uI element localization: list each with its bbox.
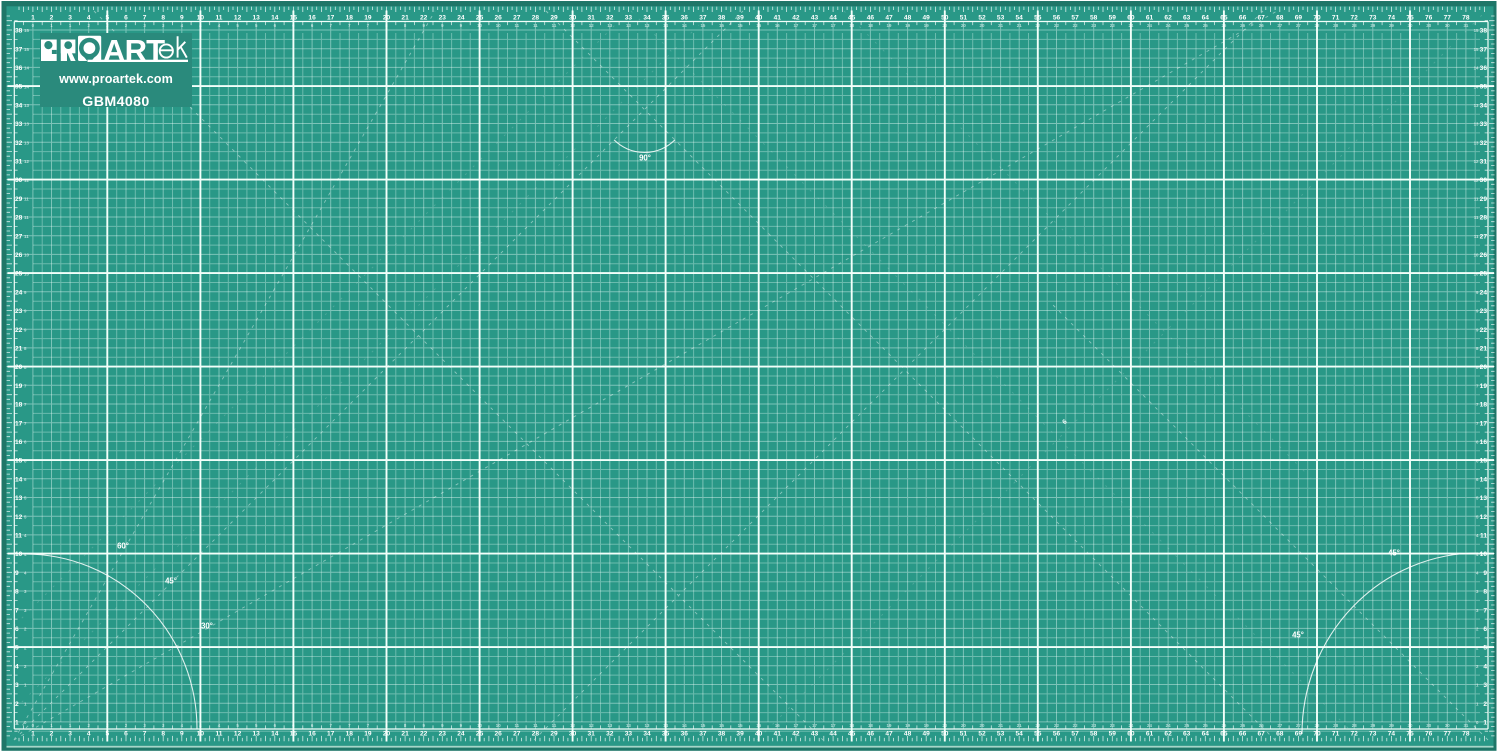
svg-text:24: 24: [457, 730, 465, 737]
svg-text:34: 34: [643, 730, 651, 737]
svg-text:12: 12: [24, 159, 29, 164]
svg-text:10: 10: [197, 730, 205, 737]
svg-text:69: 69: [1295, 14, 1303, 21]
svg-text:19: 19: [1480, 383, 1488, 390]
svg-text:7: 7: [1483, 607, 1487, 614]
svg-text:11: 11: [514, 23, 519, 28]
svg-text:76: 76: [1425, 14, 1433, 21]
svg-text:19: 19: [905, 723, 910, 728]
svg-text:77: 77: [1444, 730, 1452, 737]
svg-text:11: 11: [216, 730, 223, 737]
svg-text:8: 8: [161, 730, 165, 737]
svg-text:14: 14: [24, 84, 29, 89]
svg-text:19: 19: [924, 23, 929, 28]
svg-text:47: 47: [885, 14, 893, 21]
svg-text:65: 65: [1220, 14, 1228, 21]
svg-text:33: 33: [625, 14, 633, 21]
svg-text:28: 28: [1352, 23, 1357, 28]
svg-text:14: 14: [663, 23, 668, 28]
svg-text:20: 20: [383, 14, 391, 21]
svg-text:22: 22: [1073, 23, 1078, 28]
svg-text:17: 17: [831, 23, 836, 28]
svg-text:46: 46: [867, 14, 875, 21]
svg-text:24: 24: [1128, 723, 1133, 728]
svg-text:78: 78: [1462, 14, 1470, 21]
svg-text:38: 38: [718, 14, 726, 21]
svg-text:28: 28: [1480, 215, 1488, 222]
svg-text:30: 30: [1426, 23, 1431, 28]
svg-text:27: 27: [513, 14, 521, 21]
svg-text:70: 70: [1313, 730, 1321, 737]
svg-text:22: 22: [15, 327, 23, 334]
svg-text:31: 31: [1463, 23, 1468, 28]
svg-text:13: 13: [626, 723, 631, 728]
svg-text:12: 12: [1474, 159, 1479, 164]
svg-text:9: 9: [1483, 570, 1487, 577]
svg-text:19: 19: [364, 730, 372, 737]
svg-text:32: 32: [606, 730, 614, 737]
svg-text:12: 12: [15, 514, 23, 521]
svg-text:23: 23: [1091, 23, 1096, 28]
svg-text:3: 3: [15, 682, 19, 689]
svg-text:42: 42: [792, 730, 800, 737]
svg-text:10: 10: [477, 23, 482, 28]
svg-text:35: 35: [1480, 84, 1488, 91]
svg-text:20: 20: [1480, 364, 1488, 371]
svg-text:13: 13: [1474, 140, 1479, 145]
svg-text:11: 11: [1480, 533, 1487, 540]
svg-text:34: 34: [643, 14, 651, 21]
svg-text:90°: 90°: [639, 154, 651, 163]
svg-text:64: 64: [1202, 730, 1210, 737]
svg-text:77: 77: [1444, 14, 1452, 21]
svg-text:30: 30: [1408, 23, 1413, 28]
svg-text:27: 27: [1296, 723, 1301, 728]
svg-text:15: 15: [1474, 28, 1479, 33]
svg-text:24: 24: [1147, 723, 1152, 728]
svg-text:13: 13: [645, 723, 650, 728]
svg-text:35: 35: [662, 14, 670, 21]
svg-text:15: 15: [290, 730, 298, 737]
svg-text:16: 16: [15, 439, 23, 446]
svg-text:23: 23: [1110, 23, 1115, 28]
svg-text:10: 10: [1480, 551, 1488, 558]
svg-text:11: 11: [1474, 215, 1479, 220]
svg-text:13: 13: [24, 140, 29, 145]
svg-text:25: 25: [1203, 23, 1208, 28]
svg-text:15: 15: [700, 723, 705, 728]
svg-text:31: 31: [15, 159, 23, 166]
svg-text:70: 70: [1313, 14, 1321, 21]
svg-text:41: 41: [774, 730, 782, 737]
svg-text:35: 35: [15, 84, 23, 91]
svg-text:18: 18: [849, 723, 854, 728]
svg-text:30: 30: [1408, 723, 1413, 728]
svg-text:13: 13: [607, 723, 612, 728]
svg-text:27: 27: [15, 233, 23, 240]
svg-text:18: 18: [15, 402, 23, 409]
svg-text:45°: 45°: [1388, 549, 1400, 558]
svg-text:21: 21: [998, 723, 1003, 728]
svg-text:50: 50: [941, 730, 949, 737]
svg-text:15: 15: [24, 47, 29, 52]
svg-text:25: 25: [1184, 723, 1189, 728]
svg-text:16: 16: [756, 23, 761, 28]
svg-text:23: 23: [1091, 723, 1096, 728]
svg-text:74: 74: [1388, 14, 1396, 21]
svg-text:67: 67: [1258, 730, 1266, 737]
svg-text:73: 73: [1369, 730, 1377, 737]
svg-text:13: 13: [24, 103, 29, 108]
svg-text:13: 13: [1474, 122, 1479, 127]
svg-text:48: 48: [904, 730, 912, 737]
svg-text:10: 10: [24, 271, 29, 276]
svg-text:9: 9: [180, 14, 184, 21]
svg-text:13: 13: [607, 23, 612, 28]
svg-text:12: 12: [570, 23, 575, 28]
svg-text:52: 52: [978, 14, 986, 21]
svg-text:55: 55: [1034, 14, 1042, 21]
svg-text:23: 23: [15, 308, 23, 315]
svg-text:26: 26: [495, 14, 503, 21]
svg-text:21: 21: [998, 23, 1003, 28]
svg-text:16: 16: [756, 723, 761, 728]
svg-text:18: 18: [868, 723, 873, 728]
svg-text:20: 20: [980, 723, 985, 728]
svg-text:37: 37: [699, 14, 707, 21]
svg-text:17: 17: [15, 420, 23, 427]
svg-text:16: 16: [308, 730, 316, 737]
svg-text:21: 21: [1017, 723, 1022, 728]
svg-text:21: 21: [1480, 346, 1488, 353]
svg-text:11: 11: [15, 533, 22, 540]
svg-text:31: 31: [588, 14, 596, 21]
svg-text:33: 33: [15, 121, 23, 128]
svg-text:www.proartek.com: www.proartek.com: [58, 72, 173, 86]
svg-text:20: 20: [980, 23, 985, 28]
svg-text:10: 10: [24, 253, 29, 258]
svg-text:22: 22: [420, 14, 428, 21]
svg-text:59: 59: [1109, 730, 1117, 737]
svg-text:36: 36: [681, 730, 689, 737]
svg-text:67: 67: [1258, 14, 1266, 21]
svg-text:42: 42: [792, 14, 800, 21]
svg-text:28: 28: [532, 14, 540, 21]
svg-text:26: 26: [495, 730, 503, 737]
svg-text:11: 11: [1474, 234, 1479, 239]
svg-text:4: 4: [15, 663, 19, 670]
svg-text:60: 60: [1127, 730, 1135, 737]
svg-text:75: 75: [1406, 730, 1414, 737]
svg-text:28: 28: [1333, 723, 1338, 728]
svg-text:13: 13: [24, 122, 29, 127]
svg-text:44: 44: [829, 14, 837, 21]
svg-text:8: 8: [15, 589, 19, 596]
svg-text:37: 37: [1480, 46, 1488, 53]
svg-text:1: 1: [15, 720, 19, 727]
svg-text:17: 17: [1480, 420, 1488, 427]
svg-text:14: 14: [271, 14, 279, 21]
svg-text:11: 11: [24, 197, 29, 202]
svg-text:19: 19: [887, 23, 892, 28]
svg-text:3: 3: [68, 14, 72, 21]
svg-text:27: 27: [1277, 723, 1282, 728]
svg-text:11: 11: [552, 723, 557, 728]
svg-text:6: 6: [1483, 626, 1487, 633]
svg-text:10: 10: [197, 14, 205, 21]
svg-text:19: 19: [15, 383, 23, 390]
svg-text:22: 22: [1054, 23, 1059, 28]
svg-text:66: 66: [1239, 730, 1247, 737]
svg-text:44: 44: [829, 730, 837, 737]
svg-text:1: 1: [31, 14, 35, 21]
svg-text:11: 11: [24, 234, 29, 239]
svg-text:23: 23: [439, 14, 447, 21]
svg-text:38: 38: [718, 730, 726, 737]
svg-text:66: 66: [1239, 14, 1247, 21]
svg-text:18: 18: [346, 730, 354, 737]
svg-text:60: 60: [1127, 14, 1135, 21]
svg-text:17: 17: [327, 14, 335, 21]
svg-text:11: 11: [1474, 197, 1479, 202]
svg-text:22: 22: [1054, 723, 1059, 728]
svg-text:11: 11: [533, 723, 538, 728]
svg-text:28: 28: [15, 215, 23, 222]
svg-text:31: 31: [1480, 159, 1488, 166]
svg-text:12: 12: [24, 178, 29, 183]
svg-text:21: 21: [1017, 23, 1022, 28]
svg-text:71: 71: [1332, 730, 1340, 737]
svg-text:72: 72: [1351, 730, 1359, 737]
svg-text:25: 25: [1184, 23, 1189, 28]
svg-text:25: 25: [15, 271, 23, 278]
svg-text:73: 73: [1369, 14, 1377, 21]
svg-text:29: 29: [1370, 723, 1375, 728]
svg-text:32: 32: [606, 14, 614, 21]
svg-text:17: 17: [831, 723, 836, 728]
svg-text:20: 20: [15, 364, 23, 371]
svg-text:22: 22: [1480, 327, 1488, 334]
svg-text:17: 17: [327, 730, 335, 737]
svg-text:17: 17: [812, 723, 817, 728]
svg-text:51: 51: [960, 14, 968, 21]
svg-text:26: 26: [1259, 23, 1264, 28]
svg-text:21: 21: [15, 346, 23, 353]
svg-text:60°: 60°: [117, 542, 129, 551]
svg-text:33: 33: [1480, 121, 1488, 128]
svg-text:16: 16: [308, 14, 316, 21]
svg-text:18: 18: [1480, 402, 1488, 409]
svg-text:17: 17: [793, 23, 798, 28]
svg-text:12: 12: [589, 723, 594, 728]
svg-text:32: 32: [1480, 140, 1488, 147]
svg-text:ART: ART: [103, 33, 165, 68]
svg-text:15: 15: [15, 458, 23, 465]
svg-text:14: 14: [24, 66, 29, 71]
svg-text:8: 8: [1483, 589, 1487, 596]
svg-text:18: 18: [868, 23, 873, 28]
svg-text:29: 29: [15, 196, 23, 203]
svg-text:28: 28: [1315, 23, 1320, 28]
svg-text:38: 38: [1480, 28, 1488, 35]
svg-text:71: 71: [1332, 14, 1340, 21]
svg-text:12: 12: [589, 23, 594, 28]
svg-text:14: 14: [271, 730, 279, 737]
svg-text:19: 19: [887, 723, 892, 728]
svg-text:15: 15: [719, 723, 724, 728]
svg-text:10: 10: [1474, 253, 1479, 258]
svg-text:4: 4: [87, 730, 91, 737]
svg-text:30: 30: [1480, 177, 1488, 184]
svg-text:22: 22: [1073, 723, 1078, 728]
svg-text:39: 39: [736, 14, 744, 21]
svg-text:54: 54: [1016, 14, 1024, 21]
svg-text:58: 58: [1090, 730, 1098, 737]
svg-text:72: 72: [1351, 14, 1359, 21]
svg-text:3: 3: [1483, 682, 1487, 689]
svg-text:2: 2: [1483, 701, 1487, 708]
svg-text:40: 40: [755, 730, 763, 737]
svg-text:30: 30: [1426, 723, 1431, 728]
svg-text:23: 23: [1480, 308, 1488, 315]
svg-text:63: 63: [1183, 730, 1191, 737]
svg-text:10: 10: [1474, 271, 1479, 276]
svg-text:53: 53: [997, 14, 1005, 21]
svg-text:11: 11: [24, 215, 29, 220]
svg-text:46: 46: [867, 730, 875, 737]
svg-text:17: 17: [812, 23, 817, 28]
svg-text:26: 26: [1480, 252, 1488, 259]
svg-text:20: 20: [961, 23, 966, 28]
svg-text:49: 49: [923, 730, 931, 737]
svg-text:10: 10: [15, 551, 23, 558]
svg-text:29: 29: [1480, 196, 1488, 203]
svg-text:39: 39: [736, 730, 744, 737]
svg-text:28: 28: [1315, 723, 1320, 728]
svg-text:57: 57: [1071, 730, 1079, 737]
svg-text:32: 32: [15, 140, 23, 147]
svg-text:29: 29: [1389, 23, 1394, 28]
svg-text:7: 7: [143, 730, 147, 737]
svg-text:64: 64: [1202, 14, 1210, 21]
svg-text:52: 52: [978, 730, 986, 737]
svg-text:13: 13: [253, 14, 261, 21]
svg-text:11: 11: [533, 23, 538, 28]
svg-text:21: 21: [401, 730, 409, 737]
svg-text:36: 36: [1480, 65, 1488, 72]
svg-text:10: 10: [496, 23, 501, 28]
svg-text:10: 10: [477, 723, 482, 728]
svg-text:26: 26: [15, 252, 23, 259]
svg-text:18: 18: [346, 14, 354, 21]
svg-text:18: 18: [849, 23, 854, 28]
svg-text:25: 25: [1480, 271, 1488, 278]
svg-text:49: 49: [923, 14, 931, 21]
svg-text:30: 30: [1445, 23, 1450, 28]
svg-text:13: 13: [15, 495, 23, 502]
svg-text:36: 36: [681, 14, 689, 21]
svg-text:14: 14: [682, 23, 687, 28]
svg-text:27: 27: [1480, 233, 1488, 240]
svg-text:22: 22: [1035, 723, 1040, 728]
svg-text:12: 12: [1474, 178, 1479, 183]
svg-text:54: 54: [1016, 730, 1024, 737]
svg-text:27: 27: [513, 730, 521, 737]
svg-text:50: 50: [941, 14, 949, 21]
svg-text:7: 7: [143, 14, 147, 21]
svg-text:13: 13: [1480, 495, 1488, 502]
svg-text:16: 16: [775, 723, 780, 728]
svg-text:20: 20: [942, 23, 947, 28]
svg-text:12: 12: [1480, 514, 1488, 521]
svg-text:51: 51: [960, 730, 968, 737]
svg-text:27: 27: [1296, 23, 1301, 28]
svg-text:40: 40: [755, 14, 763, 21]
svg-text:24: 24: [1480, 289, 1488, 296]
svg-text:63: 63: [1183, 14, 1191, 21]
svg-text:20: 20: [942, 723, 947, 728]
svg-text:45: 45: [848, 730, 856, 737]
svg-text:30: 30: [1445, 723, 1450, 728]
svg-text:17: 17: [793, 723, 798, 728]
svg-text:30: 30: [569, 730, 577, 737]
svg-text:9: 9: [15, 570, 19, 577]
svg-text:24: 24: [15, 289, 23, 296]
svg-text:29: 29: [550, 730, 558, 737]
svg-text:2: 2: [15, 701, 19, 708]
svg-text:24: 24: [1147, 23, 1152, 28]
svg-text:14: 14: [663, 723, 668, 728]
svg-text:41: 41: [774, 14, 782, 21]
svg-text:29: 29: [1389, 723, 1394, 728]
svg-text:78: 78: [1462, 730, 1470, 737]
svg-text:12: 12: [234, 730, 242, 737]
svg-text:31: 31: [588, 730, 596, 737]
svg-text:36: 36: [15, 65, 23, 72]
svg-text:30°: 30°: [201, 622, 213, 631]
svg-text:25: 25: [1203, 723, 1208, 728]
svg-text:15: 15: [738, 723, 743, 728]
svg-text:15: 15: [700, 23, 705, 28]
svg-text:29: 29: [550, 14, 558, 21]
svg-text:1: 1: [31, 730, 35, 737]
svg-text:10: 10: [496, 723, 501, 728]
svg-text:13: 13: [626, 23, 631, 28]
svg-text:45°: 45°: [165, 577, 177, 586]
svg-text:33: 33: [625, 730, 633, 737]
svg-text:34: 34: [1480, 102, 1488, 109]
svg-text:56: 56: [1053, 14, 1061, 21]
svg-text:37: 37: [699, 730, 707, 737]
svg-text:26: 26: [1221, 23, 1226, 28]
svg-text:14: 14: [15, 476, 23, 483]
svg-text:6: 6: [124, 14, 128, 21]
svg-text:20: 20: [961, 723, 966, 728]
svg-text:5: 5: [15, 645, 19, 652]
svg-text:24: 24: [1128, 23, 1133, 28]
svg-text:16: 16: [775, 23, 780, 28]
svg-text:48: 48: [904, 14, 912, 21]
svg-text:8: 8: [161, 14, 165, 21]
svg-text:15: 15: [290, 14, 298, 21]
svg-text:6: 6: [124, 730, 128, 737]
svg-text:23: 23: [1110, 723, 1115, 728]
svg-text:27: 27: [1277, 23, 1282, 28]
svg-text:28: 28: [1333, 23, 1338, 28]
svg-text:14: 14: [682, 723, 687, 728]
svg-text:68: 68: [1276, 730, 1284, 737]
svg-text:5: 5: [105, 730, 109, 737]
